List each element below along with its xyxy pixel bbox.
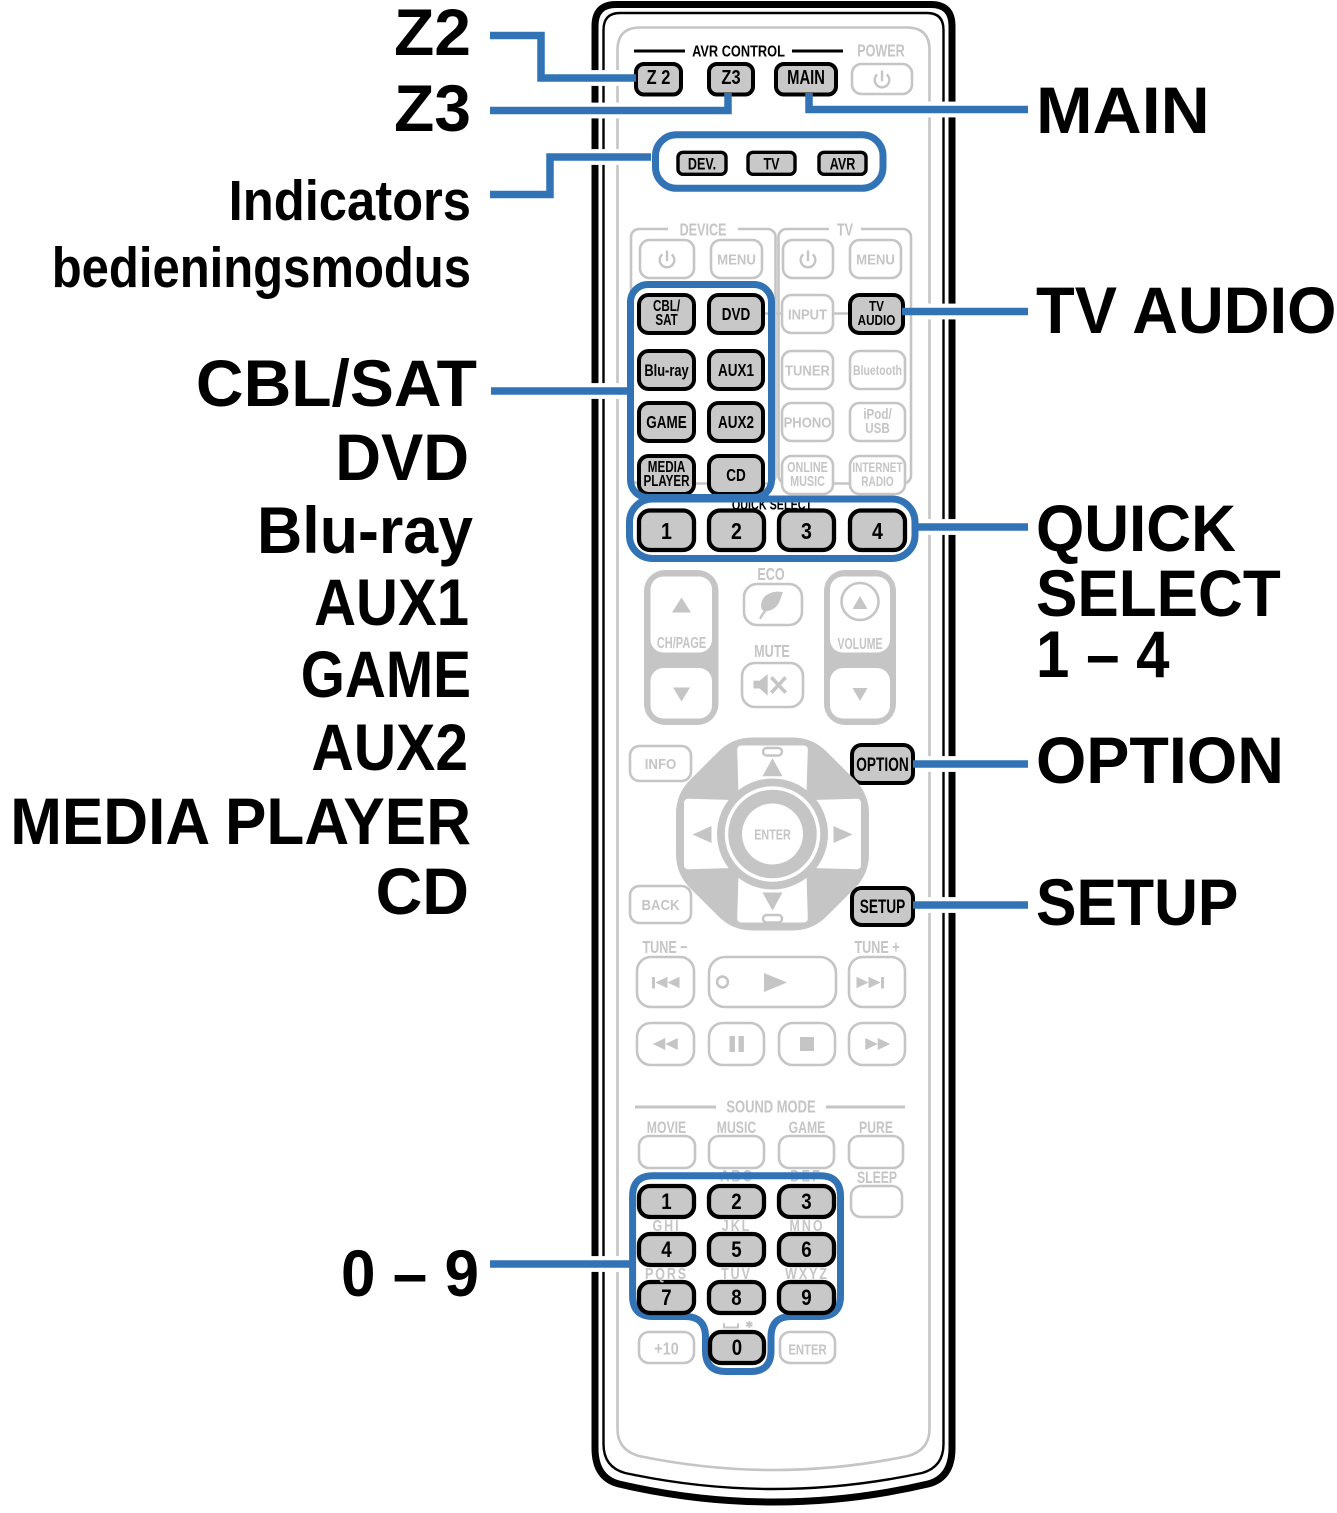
svg-text:DEVICE: DEVICE	[680, 221, 727, 241]
svg-text:Bluetooth: Bluetooth	[853, 363, 902, 379]
svg-text:9: 9	[801, 1287, 811, 1311]
svg-text:3: 3	[801, 519, 812, 545]
svg-text:TUV: TUV	[721, 1266, 752, 1284]
svg-text:DVD: DVD	[335, 420, 469, 494]
svg-text:INFO: INFO	[645, 755, 677, 772]
svg-text:AUX2: AUX2	[311, 711, 468, 785]
svg-text:ENTER: ENTER	[788, 1341, 827, 1358]
svg-text:MEDIA PLAYER: MEDIA PLAYER	[10, 784, 471, 858]
svg-text:GHI: GHI	[652, 1218, 680, 1236]
svg-text:TV AUDIO: TV AUDIO	[1036, 273, 1336, 347]
svg-text:PHONO: PHONO	[784, 415, 832, 431]
svg-text:MAIN: MAIN	[787, 66, 825, 89]
svg-text:2: 2	[731, 1191, 741, 1215]
svg-text:1: 1	[661, 519, 672, 545]
svg-text:AUX1: AUX1	[314, 567, 469, 640]
svg-text:MAIN: MAIN	[1036, 74, 1210, 148]
svg-text:Blu-ray: Blu-ray	[257, 494, 473, 568]
svg-text:AVR: AVR	[830, 155, 856, 174]
svg-text:SETUP: SETUP	[1036, 867, 1238, 940]
svg-text:BACK: BACK	[641, 896, 680, 913]
svg-text:AUX1: AUX1	[718, 361, 754, 380]
svg-text:CH/PAGE: CH/PAGE	[657, 634, 706, 651]
svg-text:OPTION: OPTION	[856, 754, 908, 776]
svg-text:4: 4	[872, 519, 883, 545]
svg-text:6: 6	[801, 1239, 811, 1263]
svg-text:OPTION: OPTION	[1036, 723, 1284, 797]
svg-text:MUTE: MUTE	[754, 642, 790, 662]
svg-text:Z2: Z2	[394, 0, 471, 69]
svg-text:8: 8	[731, 1287, 741, 1311]
svg-text:0: 0	[732, 1337, 742, 1361]
svg-text:1: 1	[661, 1191, 671, 1215]
svg-text:2: 2	[731, 519, 742, 545]
svg-text:4: 4	[661, 1239, 672, 1263]
svg-text:ECO: ECO	[757, 565, 784, 585]
svg-text:ENTER: ENTER	[754, 826, 791, 843]
svg-text:TUNE −: TUNE −	[642, 938, 687, 958]
svg-text:CBL/SAT: CBL/SAT	[196, 346, 477, 420]
svg-text:bedieningsmodus: bedieningsmodus	[52, 237, 471, 300]
svg-text:DVD: DVD	[722, 305, 750, 324]
svg-text:JKL: JKL	[722, 1218, 751, 1236]
svg-text:DEV.: DEV.	[688, 155, 716, 174]
svg-text:+10: +10	[654, 1339, 678, 1359]
svg-text:TUNER: TUNER	[785, 363, 830, 379]
svg-text:MENU: MENU	[717, 251, 756, 268]
svg-text:1 – 4: 1 – 4	[1036, 618, 1170, 691]
svg-text:AUX2: AUX2	[718, 413, 754, 432]
svg-text:QUICK: QUICK	[1036, 491, 1236, 565]
svg-text:SETUP: SETUP	[860, 896, 906, 918]
svg-text:Z 2: Z 2	[647, 65, 671, 88]
svg-text:INPUT: INPUT	[788, 307, 828, 323]
svg-text:TV: TV	[837, 221, 854, 241]
svg-text:GAME: GAME	[301, 638, 471, 712]
svg-text:Z3: Z3	[394, 71, 471, 145]
svg-text:TUNE +: TUNE +	[854, 938, 899, 958]
svg-text:POWER: POWER	[857, 42, 905, 62]
svg-text:MENU: MENU	[856, 251, 895, 268]
svg-text:0 – 9: 0 – 9	[341, 1236, 479, 1310]
svg-text:AUDIO: AUDIO	[858, 312, 896, 329]
svg-text:AVR CONTROL: AVR CONTROL	[692, 43, 785, 61]
svg-text:5: 5	[731, 1239, 741, 1263]
svg-text:Blu-ray: Blu-ray	[644, 363, 689, 381]
svg-text:3: 3	[801, 1191, 811, 1215]
svg-text:RADIO: RADIO	[861, 473, 893, 489]
svg-text:SAT: SAT	[655, 311, 678, 328]
svg-text:MNO: MNO	[790, 1218, 825, 1236]
svg-text:WXYZ: WXYZ	[785, 1266, 829, 1284]
svg-text:SOUND MODE: SOUND MODE	[726, 1098, 815, 1118]
svg-text:USB: USB	[865, 420, 889, 437]
svg-text:CD: CD	[376, 854, 469, 928]
svg-text:7: 7	[661, 1287, 671, 1311]
svg-text:MUSIC: MUSIC	[790, 472, 825, 489]
svg-text:Indicators: Indicators	[229, 169, 471, 232]
svg-text:PLAYER: PLAYER	[643, 472, 689, 489]
svg-text:GAME: GAME	[646, 413, 686, 432]
svg-text:CD: CD	[726, 466, 745, 485]
svg-text:Z3: Z3	[721, 65, 740, 88]
svg-text:TV: TV	[763, 155, 779, 174]
svg-text:VOLUME: VOLUME	[837, 635, 882, 653]
svg-text:PQRS: PQRS	[645, 1266, 688, 1284]
